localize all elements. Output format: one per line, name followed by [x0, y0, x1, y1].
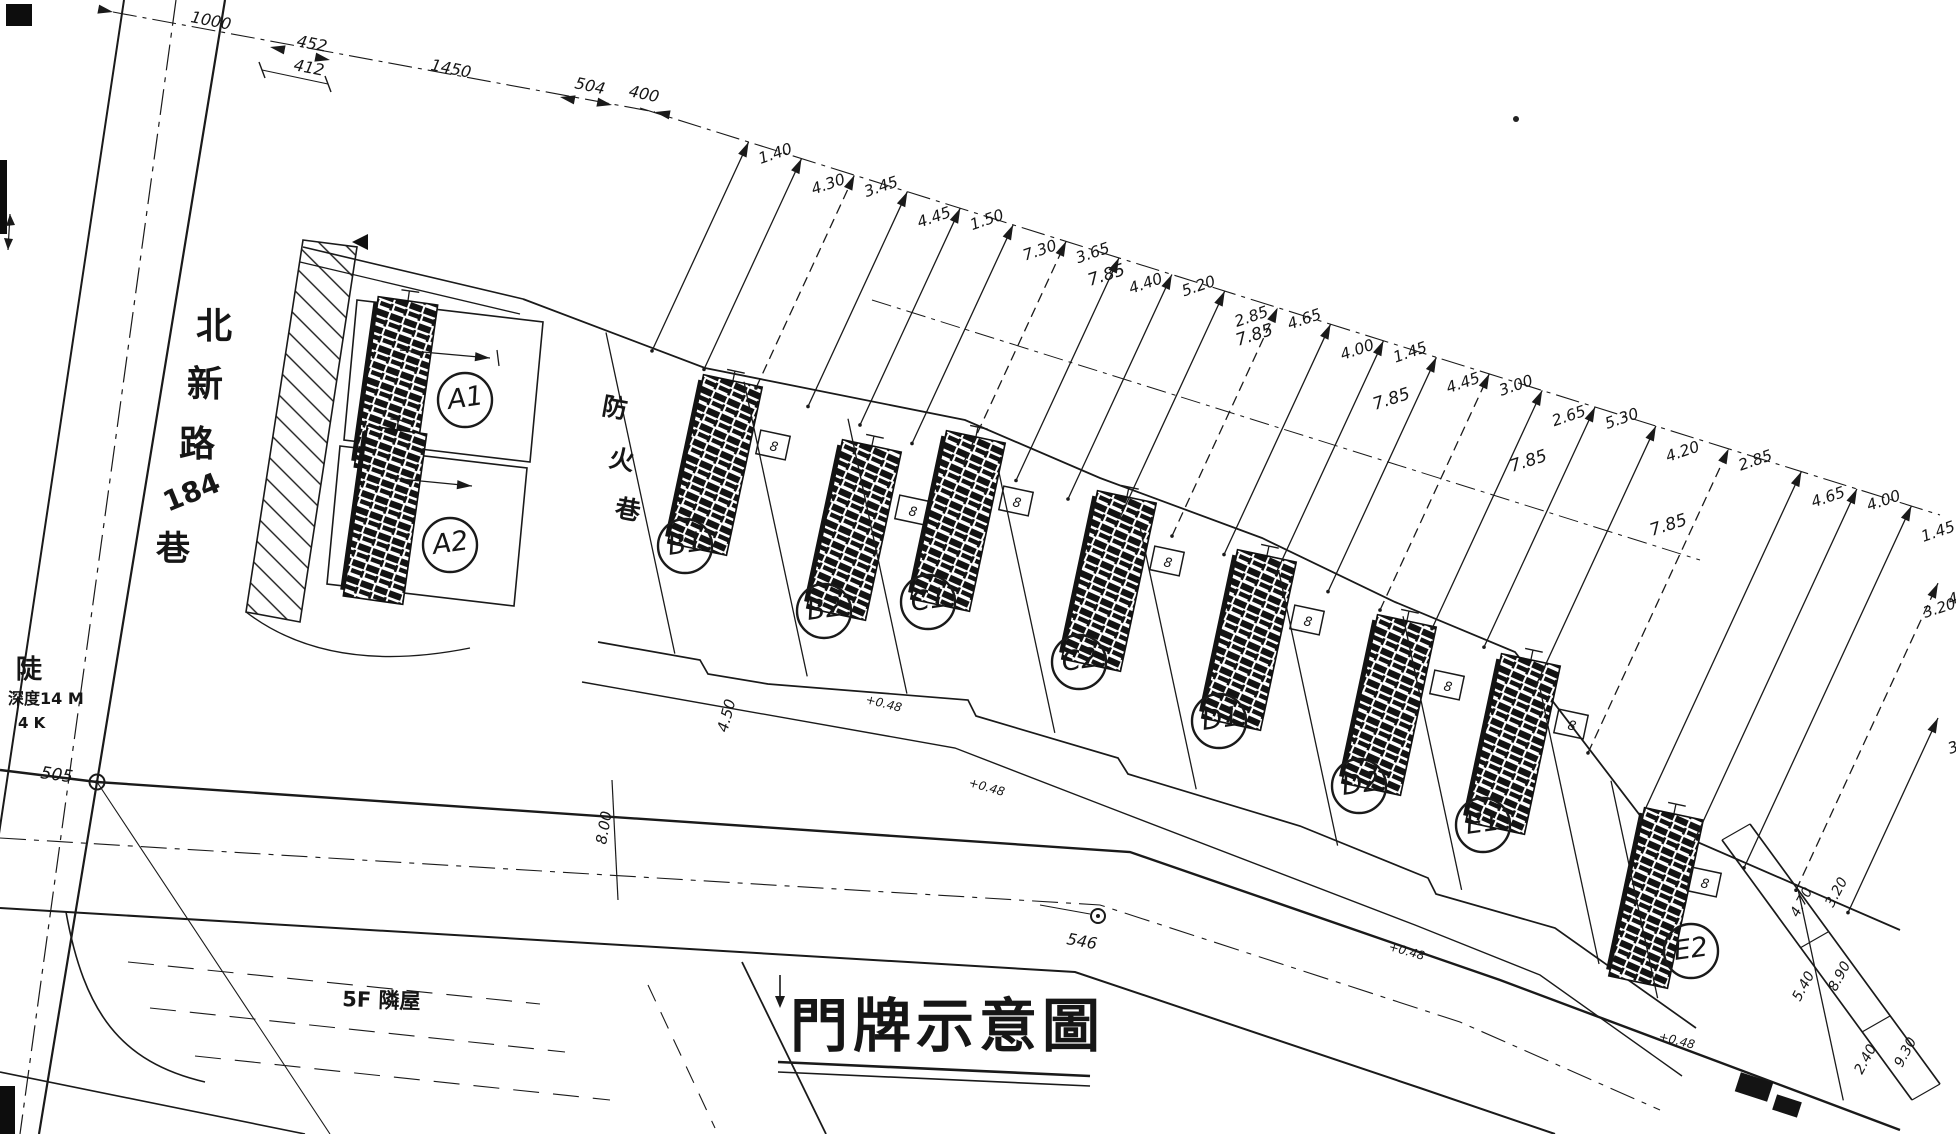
- building-label: D2: [1340, 766, 1382, 802]
- fan-dim-label: 2.65: [1550, 402, 1588, 430]
- fan-dim-label: 1.40: [756, 139, 795, 167]
- ink-scribble: [1735, 1072, 1774, 1102]
- slope-note: 深度14 M: [8, 689, 84, 708]
- building-unit-stack: [907, 420, 1007, 611]
- street-edge-line: [39, 0, 225, 1134]
- fan-base-dot: [1690, 844, 1694, 848]
- chain-dim-label: 452: [295, 31, 329, 55]
- dim-arrowhead: [4, 238, 13, 250]
- fan-base-dot: [1118, 516, 1122, 520]
- fan-dimension-line: [1224, 324, 1331, 554]
- parcel-separator-line: [1279, 572, 1338, 846]
- fan-dim-label: 2.85: [1736, 446, 1774, 474]
- fan-dimension-line: [860, 208, 960, 425]
- survey-node-label: 546: [1065, 929, 1098, 953]
- fan-dim-label: 4.45: [1444, 369, 1482, 397]
- building-label: E1: [1464, 805, 1502, 840]
- fan-dimension-line: [1432, 390, 1542, 628]
- e2-dimension-lines: [1722, 824, 1940, 1118]
- building-label: C1: [909, 582, 949, 618]
- building-label: C2: [1060, 642, 1100, 678]
- scan-corner-mark: [0, 1086, 15, 1134]
- fan-dim-label: 4.30: [809, 170, 848, 198]
- fan-dimension-line: [1744, 506, 1911, 868]
- leader-arrowhead: [475, 352, 491, 362]
- survey-leader: [1040, 905, 1090, 914]
- fan-dimension-line: [1276, 341, 1384, 573]
- entry-box-mark: 8: [768, 439, 779, 455]
- fan-dimension-line: [808, 192, 907, 407]
- parcel-dash-line: [195, 1056, 610, 1100]
- fan-dimension-line: [1068, 275, 1172, 500]
- entry-box-mark: 8: [1302, 614, 1313, 630]
- ink-scribble: [1772, 1094, 1802, 1117]
- hatched-protection-strip: [246, 240, 357, 622]
- building-unit-stack: [803, 429, 903, 620]
- chain-dim-label: 1000: [189, 7, 233, 33]
- fan-dimension-line: [756, 175, 854, 388]
- road-lower-edge: [0, 908, 1555, 1134]
- leader-end-tick: [497, 350, 499, 366]
- fan-arrowhead: [1846, 487, 1861, 504]
- survey-node-dot: [1096, 914, 1100, 918]
- fan-dimension-line: [704, 159, 802, 370]
- fan-dim-label: 4.20: [1663, 437, 1702, 465]
- survey-node-label: 505: [39, 763, 74, 787]
- ink-speck: [1513, 116, 1519, 122]
- fan-dimension-line: [1016, 258, 1119, 481]
- scan-corner-mark: [6, 4, 32, 26]
- building-label: D1: [1200, 701, 1242, 737]
- slope-note: 陡: [16, 655, 43, 685]
- street-name-char: 巷: [155, 529, 190, 569]
- fan-dim-label: 4.40: [1126, 269, 1165, 297]
- neighbor-label: 5F 隣屋: [342, 987, 421, 1014]
- fan-base-dot: [1326, 590, 1330, 594]
- chain-arrowhead: [269, 42, 285, 54]
- street-name-char: 184: [158, 466, 225, 518]
- street-name-char: 北: [196, 306, 232, 347]
- fan-base-dot: [1586, 751, 1590, 755]
- corner-dim-label: 5.40: [1789, 969, 1818, 1004]
- fan-dim-label: 1.45: [1391, 338, 1429, 366]
- entry-box-mark: 8: [907, 504, 918, 520]
- fan-base-dot: [1014, 479, 1018, 483]
- fan-base-dot: [1534, 684, 1538, 688]
- fan-dim-label: 5.30: [1603, 404, 1642, 432]
- parcel-separator-line: [1403, 616, 1462, 890]
- chain-arrowhead: [596, 98, 612, 110]
- fan-dimension-line: [1120, 291, 1225, 518]
- parcel-dash-line: [648, 985, 715, 1128]
- fan-dimension-line: [1484, 407, 1595, 647]
- fan-base-dot: [1742, 866, 1746, 870]
- drawing-title: 門牌示意圖: [790, 992, 1105, 1060]
- fan-base-dot: [650, 349, 654, 353]
- fan-dimension-line: [1796, 583, 1938, 890]
- fan-dimension-line: [1380, 374, 1489, 610]
- fan-base-dot: [1170, 534, 1174, 538]
- scanned-site-plan: 門牌示意圖 北新路184巷防火巷5F 隣屋陡深度14 M4 K505546A1A…: [0, 0, 1956, 1134]
- fan-arrowhead: [1532, 388, 1547, 405]
- fan-dimension-line: [1848, 718, 1938, 913]
- dim-line: [1722, 840, 1912, 1100]
- mid-boundary-line: [872, 300, 1700, 560]
- fan-dim-label: 4.45: [915, 203, 953, 231]
- entry-box-mark: 8: [1442, 679, 1453, 695]
- parcel-dash-line: [128, 962, 540, 1004]
- fire-lane-char: 巷: [612, 493, 644, 526]
- misc-dim-label: 3.20: [1921, 594, 1956, 621]
- chain-dim-label: 504: [573, 73, 607, 98]
- fan-base-dot: [962, 460, 966, 464]
- fan-dim-label: 7.30: [1021, 236, 1060, 264]
- fan-dim-label: 1.45: [1919, 517, 1956, 545]
- fan-dim-label: 5.20: [1179, 272, 1218, 300]
- fan-arrowhead: [1426, 355, 1441, 372]
- fan-dimension-line: [912, 225, 1013, 444]
- building-unit-stack: [339, 415, 428, 604]
- survey-node-dot: [95, 780, 99, 784]
- fan-dim-label: 3.45: [862, 173, 900, 201]
- fan-base-dot: [806, 405, 810, 409]
- building-label: E2: [1672, 931, 1710, 966]
- mid-dim-label: 7.85: [1647, 510, 1689, 541]
- fan-base-dot: [1066, 497, 1070, 501]
- neighbor-parcel: [0, 912, 826, 1134]
- step-annotation: +0.48: [967, 775, 1007, 799]
- fan-dim-label: 4.65: [1809, 483, 1847, 511]
- chain-dim-label: 1450: [429, 55, 473, 81]
- parcel-separator-line: [744, 382, 807, 677]
- street-name-char: 路: [179, 424, 216, 465]
- fire-lane-char: 火: [607, 443, 637, 476]
- entry-box-mark: 8: [1162, 555, 1173, 571]
- fan-dimension-line: [1588, 449, 1729, 753]
- fan-dim-label: 4.00: [1338, 336, 1377, 364]
- fan-arrowhead: [1928, 716, 1943, 733]
- chain-dim-label: 400: [627, 81, 661, 106]
- mid-dim-label: 7.85: [1370, 384, 1412, 415]
- fan-base-dot: [1222, 553, 1226, 557]
- slope-note: 4 K: [18, 714, 47, 732]
- step-annotation: +0.48: [1657, 1029, 1696, 1052]
- corner-boundary-line: [0, 1072, 305, 1134]
- fan-base-dot: [1274, 571, 1278, 575]
- entry-box-mark: 8: [1699, 876, 1710, 892]
- fan-base-dot: [1846, 911, 1850, 915]
- building-unit-stack: [1462, 643, 1562, 834]
- fan-arrowhead: [1645, 424, 1660, 441]
- step-annotation: +0.48: [864, 692, 903, 715]
- building-label: A1: [444, 380, 486, 416]
- fan-base-dot: [858, 423, 862, 427]
- corner-dim-label: 3.20: [1822, 875, 1851, 910]
- fan-base-dot: [754, 386, 758, 390]
- building-label: B1: [666, 526, 706, 562]
- parcel-corner-curve: [66, 912, 205, 1082]
- parcel-separator-line: [999, 473, 1055, 733]
- parcel-wedge-line: [97, 782, 330, 1134]
- fan-arrowhead: [738, 140, 753, 157]
- site-plan-drawing: 門牌示意圖 北新路184巷防火巷5F 隣屋陡深度14 M4 K505546A1A…: [0, 0, 1956, 1134]
- leader-arrowhead: [457, 480, 473, 490]
- fan-dimension-line: [964, 241, 1066, 462]
- fan-base-dot: [1794, 888, 1798, 892]
- fan-dimension-line: [652, 142, 749, 351]
- chain-arrowhead: [97, 5, 113, 17]
- fan-dim-label: 4.00: [1864, 486, 1903, 514]
- corner-dim-label: 2.40: [1851, 1042, 1880, 1077]
- corner-dim-label: 8.90: [1825, 959, 1854, 994]
- building-unit-stack: [1198, 539, 1298, 730]
- fan-base-dot: [1638, 819, 1642, 823]
- fan-base-dot: [1430, 627, 1434, 631]
- misc-dim-label: 4.50: [713, 697, 739, 734]
- fan-arrowhead: [844, 173, 859, 190]
- building-unit-stack: [1058, 480, 1158, 671]
- fan-dim-label: 3.20: [1945, 729, 1956, 757]
- title-block: 門牌示意圖: [775, 975, 1105, 1086]
- fan-base-dot: [910, 442, 914, 446]
- fan-dim-label: 1.50: [968, 206, 1007, 234]
- title-arrowhead: [775, 996, 785, 1008]
- building-label: A2: [429, 525, 471, 561]
- scan-edge-mark: [0, 160, 7, 234]
- fan-dim-label: 4.65: [1285, 305, 1323, 333]
- step-annotation: +0.48: [1387, 939, 1427, 963]
- fan-dim-label: 3.00: [1497, 371, 1536, 399]
- fan-arrowhead: [1928, 581, 1943, 598]
- street-name-char: 新: [187, 364, 223, 405]
- building-unit-stack: [1338, 604, 1438, 795]
- fan-base-dot: [1482, 645, 1486, 649]
- parcel-dash-line: [150, 1008, 565, 1052]
- street-edge-line: [0, 0, 124, 1134]
- fan-dimension-line: [1692, 489, 1857, 846]
- parcel-separator-line: [606, 333, 675, 654]
- fan-arrowhead: [1161, 273, 1176, 290]
- fan-dim-label: 3.65: [1073, 239, 1111, 267]
- fan-base-dot: [702, 368, 706, 372]
- dim-arrowhead: [6, 214, 15, 226]
- fan-base-dot: [1378, 608, 1382, 612]
- building-label: B2: [805, 591, 845, 627]
- entry-box-mark: 8: [1011, 495, 1022, 511]
- leader-line: [612, 780, 618, 900]
- corner-dim-label: 4.70: [1787, 885, 1816, 920]
- building-unit-stack: [664, 364, 764, 555]
